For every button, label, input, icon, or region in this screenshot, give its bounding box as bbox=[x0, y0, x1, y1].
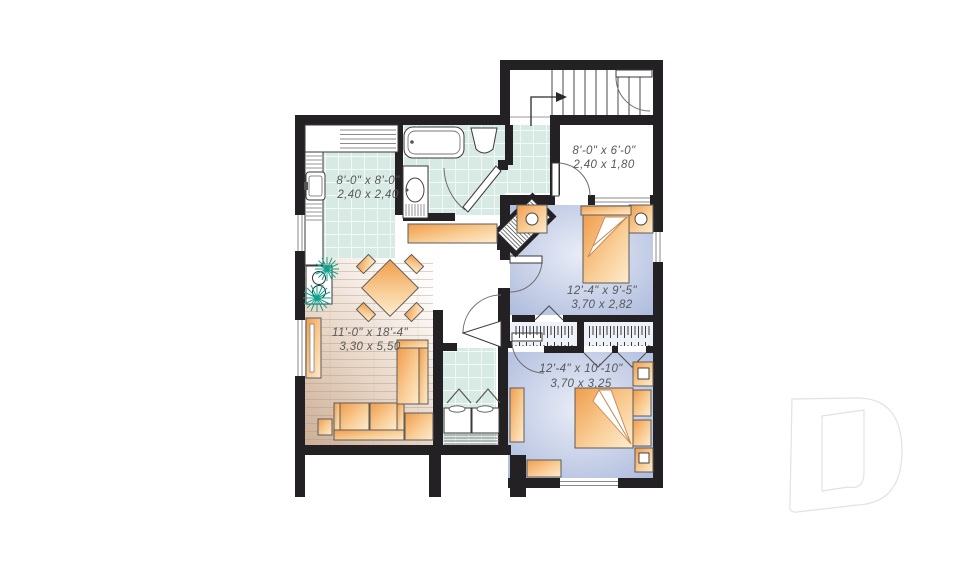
kitchen-sink bbox=[304, 172, 325, 200]
bedroom2-dimensions-imperial: 12'-4" x 10'-10" bbox=[539, 363, 623, 375]
tv-cabinet bbox=[306, 318, 321, 378]
window-living-left bbox=[295, 320, 305, 376]
bedroom2-nightstand-bottom bbox=[635, 448, 653, 472]
entry-dimensions-metric: 2,40 x 1,80 bbox=[572, 159, 635, 171]
bathroom-vanity bbox=[403, 166, 428, 218]
kitchen-dimensions-imperial: 8'-0" x 8'-0" bbox=[336, 175, 400, 187]
door-laundry bbox=[463, 295, 501, 347]
window-bedroom2-bottom bbox=[560, 478, 618, 488]
drummond-d-logo-icon bbox=[790, 398, 902, 512]
window-bedroom1-top bbox=[595, 195, 650, 205]
bedroom1-bed bbox=[581, 206, 631, 283]
bedroom1-nightstand-right bbox=[629, 205, 653, 233]
bedroom2-dresser bbox=[527, 460, 561, 477]
window-kitchen-left bbox=[295, 215, 305, 251]
kitchen-dimensions-metric: 2,40 x 2,40 bbox=[336, 189, 399, 201]
bathtub bbox=[404, 127, 464, 158]
bedroom1-dimensions-metric: 3,70 x 2,82 bbox=[571, 299, 633, 311]
ottoman bbox=[405, 413, 433, 440]
closet2-hanging-rod bbox=[587, 326, 651, 346]
bedroom2-dimensions-metric: 3,70 x 3,25 bbox=[550, 378, 612, 390]
armchair bbox=[397, 340, 428, 404]
plant-1 bbox=[315, 257, 339, 281]
plant-2 bbox=[303, 284, 331, 312]
window-bedroom1-right bbox=[653, 232, 663, 262]
bedroom1-nightstand-left bbox=[517, 205, 547, 233]
door-stair-top bbox=[616, 70, 652, 111]
bedroom2-nightstand-top bbox=[633, 362, 653, 386]
kitchen-counter-left bbox=[305, 152, 323, 265]
hall-cabinet bbox=[408, 224, 497, 243]
entry-dimensions-imperial: 8'-0" x 6'-0" bbox=[572, 145, 636, 157]
floor-plan-canvas: 8'-0" x 8'-0" 2,40 x 2,40 8'-0" x 6'-0" … bbox=[0, 0, 960, 569]
closet1-hanging-rod bbox=[515, 326, 573, 346]
living-dimensions-metric: 3,30 x 5,50 bbox=[339, 341, 401, 353]
bedroom2-chest bbox=[510, 388, 524, 442]
side-table bbox=[318, 419, 332, 435]
living-dimensions-imperial: 11'-0" x 18'-4" bbox=[332, 327, 408, 339]
bedroom1-dimensions-imperial: 12'-4" x 9'-5" bbox=[567, 285, 637, 297]
sofa bbox=[334, 403, 404, 440]
floor-plan-svg: 8'-0" x 8'-0" 2,40 x 2,40 8'-0" x 6'-0" … bbox=[0, 0, 960, 569]
